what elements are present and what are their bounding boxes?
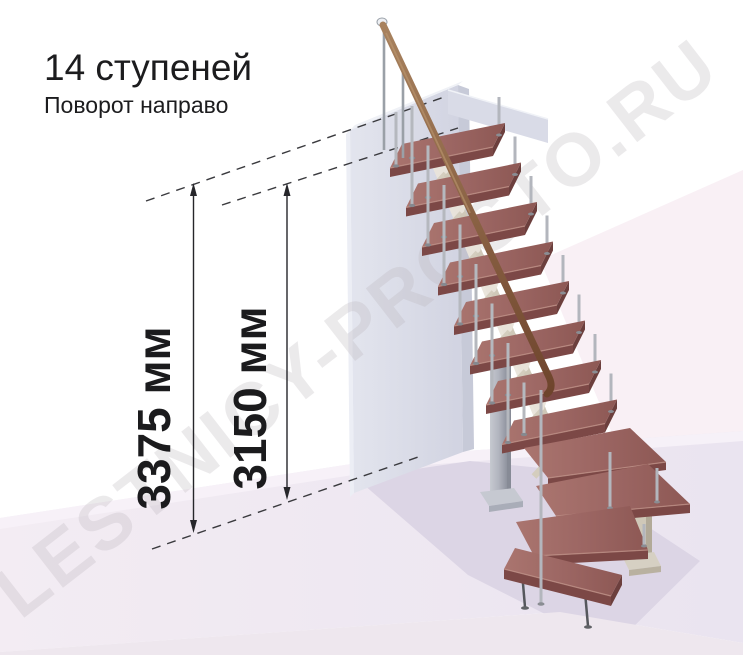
rod-joint [512,173,518,176]
rod-joint [441,283,447,286]
rod-joint [528,213,534,216]
rod-joint [592,371,598,374]
dimension-label-3375: 3375 мм [128,326,180,509]
rod-joint [560,292,566,295]
rod-joint [505,441,511,444]
header: 14 ступеней Поворот направо [44,47,252,118]
rod-joint [608,410,614,413]
rod-joint [538,602,545,606]
rod-joint [457,322,463,325]
rod-joint [521,433,527,436]
page-subtitle: Поворот направо [44,92,228,118]
rod-joint [641,545,647,548]
rod-joint [409,204,415,207]
rod-joint [473,362,479,365]
page-title: 14 ступеней [44,47,252,88]
rod-joint [654,501,660,504]
rod-joint [544,252,550,255]
dimension-label-3150: 3150 мм [224,306,276,489]
bottom-step-foot [584,625,592,629]
stair-diagram: LESTNICY-PROSTO.RU [0,0,743,655]
bottom-step-foot [521,606,529,610]
rod-joint [489,401,495,404]
rod-joint [393,164,399,167]
rod-joint [496,134,502,137]
rod-joint [425,243,431,246]
rod-joint [576,331,582,334]
